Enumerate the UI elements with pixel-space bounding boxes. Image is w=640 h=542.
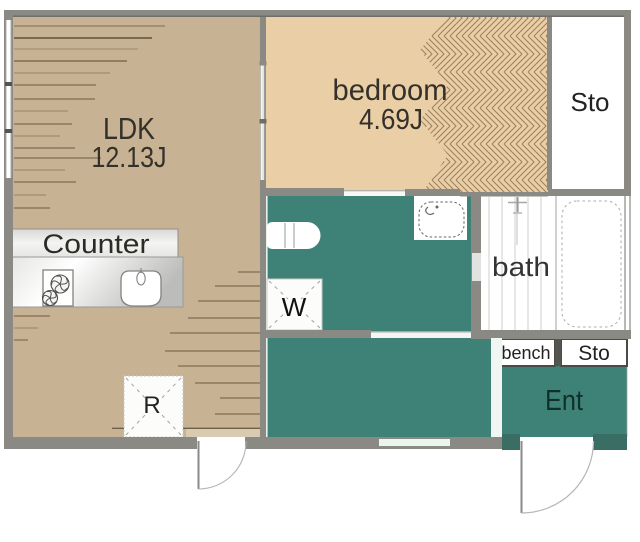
svg-text:R: R	[143, 392, 160, 419]
svg-text:12.13J: 12.13J	[92, 142, 167, 174]
svg-text:Ent: Ent	[545, 385, 583, 417]
svg-text:W: W	[282, 292, 307, 322]
svg-text:bath: bath	[492, 252, 550, 282]
svg-text:4.69J: 4.69J	[359, 104, 423, 136]
svg-text:Sto: Sto	[570, 87, 609, 117]
svg-text:bedroom: bedroom	[333, 74, 448, 107]
svg-text:Sto: Sto	[578, 342, 610, 365]
svg-text:bench: bench	[501, 343, 550, 363]
svg-text:Counter: Counter	[43, 229, 150, 259]
svg-text:LDK: LDK	[103, 111, 155, 146]
